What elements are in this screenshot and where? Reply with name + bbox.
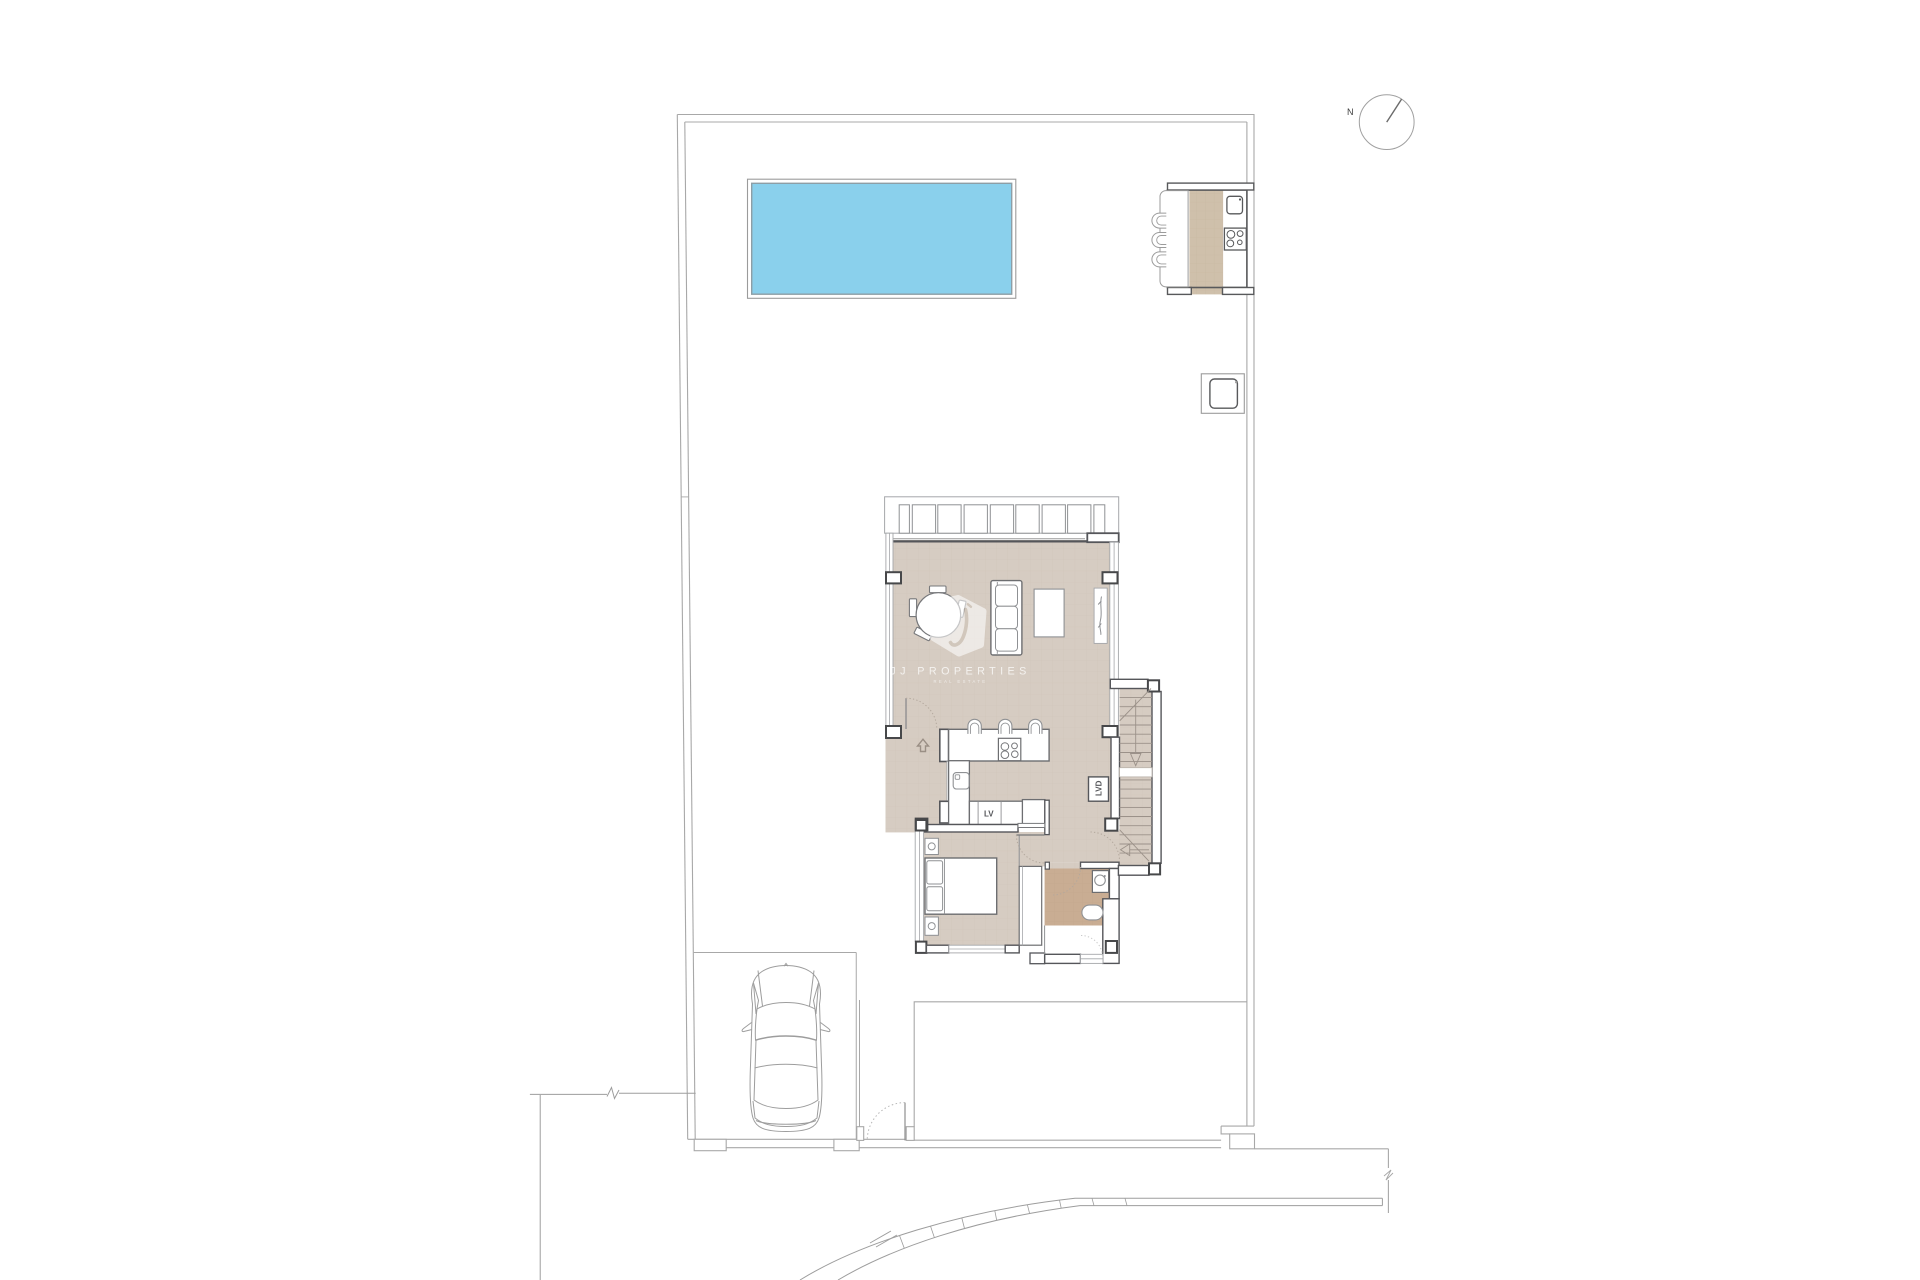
svg-text:LV: LV [984,810,994,819]
svg-text:N: N [1347,107,1354,117]
svg-text:REAL ESTATE: REAL ESTATE [933,679,987,684]
svg-text:JJ PROPERTIES: JJ PROPERTIES [890,666,1030,678]
svg-text:LVD: LVD [1095,780,1104,796]
